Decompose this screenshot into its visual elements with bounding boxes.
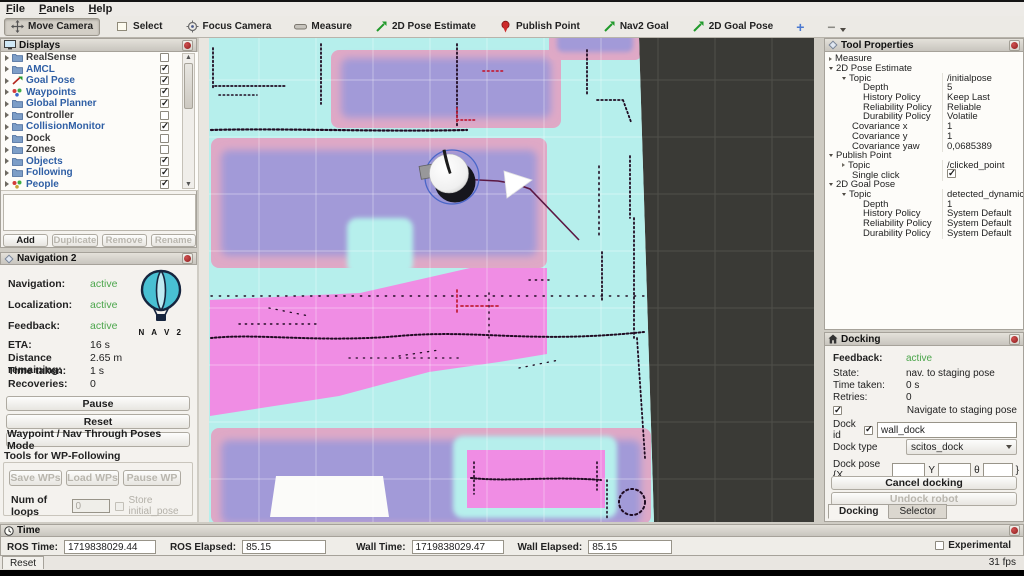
green-arrow-icon [375, 20, 388, 33]
tool-2d-goal-pose[interactable]: 2D Goal Pose [685, 18, 780, 36]
wall-elapsed-input[interactable] [588, 540, 672, 554]
tool-label: Select [133, 21, 162, 32]
num-loops-input[interactable] [72, 499, 110, 513]
display-description-box [3, 194, 196, 231]
dock-type-select[interactable]: scitos_dock [906, 439, 1017, 455]
display-item-dock[interactable]: Dock [1, 133, 198, 145]
wp-tools-heading: Tools for WP-Following [4, 450, 120, 462]
time-fields-row: ROS Time: ROS Elapsed: Wall Time: Wall E… [7, 540, 672, 554]
dock-pose-close-brace: } [1016, 465, 1019, 476]
clock-icon [4, 526, 14, 536]
dock-pose-theta-input[interactable] [983, 463, 1013, 477]
displays-panel: Displays RealSense AMCL Goal Pose Waypoi… [0, 38, 197, 248]
display-item-collisionmonitor[interactable]: CollisionMonitor [1, 121, 198, 133]
scrollbar-thumb[interactable] [184, 63, 193, 109]
display-item-amcl[interactable]: AMCL [1, 64, 198, 76]
display-checkbox[interactable] [160, 76, 169, 85]
folder-icon [12, 111, 23, 120]
docking-feedback-row: Feedback:active [833, 353, 932, 364]
property-row: Durability PolicySystem Default [825, 228, 1023, 238]
state-label: State: [833, 368, 906, 379]
dock-pose-x-input[interactable] [892, 463, 925, 477]
expand-arrow-icon[interactable] [5, 112, 9, 118]
docking-state-row: State:nav. to staging pose [833, 368, 995, 379]
ros-time-label: ROS Time: [7, 542, 58, 553]
folder-icon [12, 168, 23, 177]
load-wps-button[interactable]: Load WPs [66, 470, 119, 486]
display-item-label: RealSense [26, 52, 77, 63]
menu-panels[interactable]: Panels [39, 3, 74, 15]
bottom-letterbox [0, 570, 1024, 576]
ros-time-input[interactable] [64, 540, 156, 554]
folder-icon [12, 145, 23, 154]
display-item-following[interactable]: Following [1, 167, 198, 179]
tool-publish-point[interactable]: Publish Point [492, 18, 587, 36]
tool-label: Publish Point [516, 21, 580, 32]
display-checkbox[interactable] [160, 65, 169, 74]
folder-icon [12, 99, 23, 108]
property-value[interactable]: 0,0685389 [942, 141, 1023, 152]
expand-arrow-icon[interactable] [842, 163, 845, 167]
dock-id-row: Dock id [833, 419, 1017, 441]
display-item-label: Dock [26, 133, 50, 144]
expand-arrow-icon[interactable] [5, 124, 9, 130]
dock-type-row: Dock type scitos_dock [833, 439, 1017, 455]
expand-arrow-icon[interactable] [5, 66, 9, 72]
stat-value: 1 s [90, 365, 104, 377]
dock-id-label: Dock id [833, 419, 860, 441]
tool-nav2-goal[interactable]: Nav2 Goal [596, 18, 676, 36]
menu-help[interactable]: Help [88, 3, 112, 15]
docking-retries-row: Retries:0 [833, 392, 912, 403]
ros-elapsed-input[interactable] [242, 540, 326, 554]
display-checkbox[interactable] [160, 168, 169, 177]
dock-type-value: scitos_dock [911, 442, 963, 453]
navigation2-panel: Navigation 2 Navigation:active Localizat… [0, 252, 197, 522]
display-item-label: AMCL [26, 64, 55, 75]
status-label: Navigation: [8, 278, 90, 290]
display-checkbox[interactable] [160, 145, 169, 154]
navigate-staging-row: Navigate to staging pose [833, 405, 1017, 416]
folder-icon [12, 122, 23, 131]
pause-button[interactable]: Pause [6, 396, 190, 411]
close-panel-button[interactable] [1009, 40, 1020, 51]
diamond-icon [828, 40, 838, 50]
people-dots-icon [12, 180, 23, 189]
docking-time-row: Time taken:0 s [833, 380, 919, 391]
tool-measure[interactable]: Measure [287, 18, 359, 36]
status-label: Feedback: [8, 320, 90, 332]
store-initial-pose-label: Store initial_pose [129, 495, 192, 517]
display-item-label: Controller [26, 110, 74, 121]
status-value: active [90, 299, 117, 311]
duplicate-display-button[interactable]: Duplicate [52, 234, 97, 247]
free-space [270, 476, 389, 517]
close-icon [1011, 336, 1018, 343]
remove-display-button[interactable]: Remove [102, 234, 147, 247]
docking-panel: Docking Feedback:active State:nav. to st… [824, 332, 1024, 522]
stat-label: Time taken: [8, 365, 90, 377]
folder-icon [12, 134, 23, 143]
nav-stat-row: Recoveries:0 [8, 378, 96, 390]
display-checkbox[interactable] [160, 180, 169, 189]
rename-display-button[interactable]: Rename [151, 234, 196, 247]
waypoint-mode-button[interactable]: Waypoint / Nav Through Poses Mode [6, 432, 190, 447]
tool-2d-pose-estimate[interactable]: 2D Pose Estimate [368, 18, 483, 36]
stat-value: 16 s [90, 339, 110, 351]
display-checkbox[interactable] [160, 157, 169, 166]
docking-tabs: Docking Selector [828, 504, 947, 519]
dropdown-caret-icon [840, 28, 846, 32]
toolbar: Move Camera Select Focus Camera Measure … [0, 16, 1024, 38]
plus-icon: + [796, 19, 804, 35]
panel-title: Time [17, 525, 40, 536]
feedback-label: Feedback: [833, 353, 906, 364]
map-canvas [199, 38, 814, 522]
close-panel-button[interactable] [182, 253, 193, 264]
collapse-arrow-icon[interactable] [842, 77, 846, 80]
dock-type-label: Dock type [833, 442, 902, 453]
property-value[interactable]: System Default [942, 228, 1023, 239]
display-checkbox[interactable] [160, 88, 169, 97]
unknown-space [639, 38, 814, 522]
expand-arrow-icon[interactable] [5, 55, 9, 61]
close-panel-button[interactable] [1009, 525, 1020, 536]
waypoints-dots-icon [12, 88, 23, 97]
navigate-staging-checkbox[interactable] [833, 406, 842, 415]
time-panel-titlebar[interactable]: Time [1, 525, 1023, 537]
nav-status-row: Localization:active [8, 299, 117, 311]
add-tool-button[interactable]: + [789, 18, 811, 36]
add-display-button[interactable]: Add [3, 234, 48, 247]
collapse-arrow-icon[interactable] [829, 67, 833, 70]
close-panel-button[interactable] [182, 40, 193, 51]
tab-docking[interactable]: Docking [828, 504, 889, 519]
pause-wp-button[interactable]: Pause WP [123, 470, 181, 486]
nav-status-row: Navigation:active [8, 278, 117, 290]
status-bar: Reset 31 fps [0, 556, 1024, 570]
display-item-zones[interactable]: Zones [1, 144, 198, 156]
navigate-staging-label: Navigate to staging pose [907, 405, 1017, 416]
nav-stat-row: Time taken:1 s [8, 365, 104, 377]
experimental-checkbox[interactable] [935, 541, 944, 550]
scroll-up-icon[interactable]: ▲ [185, 54, 192, 61]
dock-pose-y-input[interactable] [938, 463, 971, 477]
panel-title: Navigation 2 [17, 253, 76, 264]
close-panel-button[interactable] [1009, 334, 1020, 345]
expand-arrow-icon[interactable] [5, 78, 9, 84]
display-checkbox[interactable] [160, 111, 169, 120]
display-checkbox[interactable] [160, 53, 169, 62]
wall-time-label: Wall Time: [356, 542, 405, 553]
stat-value: 0 [90, 378, 96, 390]
expand-arrow-icon[interactable] [5, 170, 9, 176]
measure-icon [294, 20, 307, 33]
display-item-realsense[interactable]: RealSense [1, 52, 198, 64]
panel-title: Docking [841, 334, 880, 345]
display-item-label: Zones [26, 144, 55, 155]
nav2-logo: N A V 2 [133, 268, 189, 337]
focus-camera-icon [186, 20, 199, 33]
costmap [199, 38, 659, 522]
nav-stat-row: ETA:16 s [8, 339, 110, 351]
display-item-goal-pose[interactable]: Goal Pose [1, 75, 198, 87]
time-taken-label: Time taken: [833, 380, 906, 391]
menu-bar: File Panels Help [0, 0, 1024, 16]
map-pin-icon [499, 20, 512, 33]
folder-icon [12, 157, 23, 166]
close-icon [184, 255, 191, 262]
displays-scrollbar[interactable]: ▲ ▼ [182, 53, 195, 189]
displays-tree: RealSense AMCL Goal Pose Waypoints Globa… [1, 52, 198, 191]
wp-tools-group: Save WPs Load WPs Pause WP Num of loops … [3, 462, 193, 516]
home-icon [828, 334, 838, 344]
display-item-people[interactable]: People [1, 179, 198, 191]
display-item-label: Goal Pose [26, 75, 75, 86]
expand-arrow-icon[interactable] [5, 158, 9, 164]
minus-icon: − [827, 19, 835, 35]
stat-label: ETA: [8, 339, 90, 351]
display-item-label: Global Planner [26, 98, 97, 109]
experimental-row: Experimental [935, 540, 1011, 551]
stat-label: Recoveries: [8, 378, 90, 390]
tool-label: Focus Camera [203, 21, 272, 32]
scroll-down-icon[interactable]: ▼ [185, 181, 192, 188]
status-label: Localization: [8, 299, 90, 311]
tool-properties-tree: Measure 2D Pose Estimate Topic/initialpo… [825, 54, 1023, 238]
wall-time-input[interactable] [412, 540, 504, 554]
folder-icon [12, 53, 23, 62]
panel-title: Tool Properties [841, 40, 914, 51]
property-label: Durability Policy [863, 228, 931, 239]
diamond-icon [4, 254, 14, 264]
close-icon [1011, 42, 1018, 49]
dock-id-checkbox[interactable] [864, 426, 873, 435]
expand-arrow-icon[interactable] [5, 147, 9, 153]
feedback-value: active [906, 353, 932, 364]
goal-arrow-icon [12, 76, 23, 85]
chevron-down-icon [1006, 445, 1012, 449]
dock-pose-theta-label: θ [974, 465, 980, 476]
store-initial-pose-checkbox[interactable] [115, 502, 124, 511]
tool-properties-panel: Tool Properties Measure 2D Pose Estimate… [824, 38, 1024, 330]
docking-panel-titlebar[interactable]: Docking [825, 333, 1023, 346]
ros-elapsed-label: ROS Elapsed: [170, 542, 236, 553]
nav2-logo-text: N A V 2 [133, 328, 189, 337]
display-item-label: People [26, 179, 59, 190]
status-value: active [90, 278, 117, 290]
tool-label: 2D Goal Pose [709, 21, 773, 32]
cancel-docking-button[interactable]: Cancel docking [831, 476, 1017, 490]
nav-status-row: Feedback:active [8, 320, 117, 332]
green-arrow-icon [692, 20, 705, 33]
collapse-arrow-icon[interactable] [842, 193, 846, 196]
3d-render-view[interactable] [199, 38, 814, 522]
retries-label: Retries: [833, 392, 906, 403]
display-item-label: Objects [26, 156, 63, 167]
single-click-checkbox[interactable] [947, 169, 956, 178]
close-icon [184, 42, 191, 49]
monitor-icon [4, 40, 16, 50]
select-icon [116, 20, 129, 33]
tool-label: Measure [311, 21, 352, 32]
tool-label: Move Camera [28, 21, 93, 32]
dock-pose-y-label: Y [928, 465, 935, 476]
time-panel: Time ROS Time: ROS Elapsed: Wall Time: W… [0, 524, 1024, 556]
status-value: active [90, 320, 117, 332]
displays-panel-titlebar[interactable]: Displays [1, 39, 196, 52]
expand-arrow-icon[interactable] [829, 57, 832, 61]
display-item-global-planner[interactable]: Global Planner [1, 98, 198, 110]
expand-arrow-icon[interactable] [5, 89, 9, 95]
tool-move-camera[interactable]: Move Camera [4, 18, 100, 36]
balloon-icon [135, 268, 187, 324]
expand-arrow-icon[interactable] [5, 135, 9, 141]
display-checkbox[interactable] [160, 99, 169, 108]
close-icon [1011, 527, 1018, 534]
retries-value: 0 [906, 392, 912, 403]
tool-properties-titlebar[interactable]: Tool Properties [825, 39, 1023, 52]
reset-time-button[interactable]: Reset [2, 556, 44, 569]
move-camera-icon [11, 20, 24, 33]
display-item-controller[interactable]: Controller [1, 110, 198, 122]
fps-counter: 31 fps [989, 557, 1016, 568]
property-value [942, 169, 1023, 181]
state-value: nav. to staging pose [906, 368, 995, 379]
tool-select[interactable]: Select [109, 18, 169, 36]
expand-arrow-icon[interactable] [5, 101, 9, 107]
num-loops-row: Num of loops Store initial_pose [11, 494, 192, 518]
display-item-objects[interactable]: Objects [1, 156, 198, 168]
displays-buttons: Add Duplicate Remove Rename [3, 234, 196, 247]
dock-id-input[interactable] [877, 422, 1017, 438]
experimental-label: Experimental [948, 540, 1011, 551]
collapse-arrow-icon[interactable] [829, 183, 833, 186]
tool-focus-camera[interactable]: Focus Camera [179, 18, 279, 36]
nav2-panel-titlebar[interactable]: Navigation 2 [0, 252, 197, 265]
display-item-label: Waypoints [26, 87, 76, 98]
collapse-arrow-icon[interactable] [829, 154, 833, 157]
display-checkbox[interactable] [160, 122, 169, 131]
tab-selector[interactable]: Selector [889, 504, 947, 519]
tool-label: Nav2 Goal [620, 21, 669, 32]
folder-icon [12, 65, 23, 74]
green-arrow-icon [603, 20, 616, 33]
menu-file[interactable]: File [6, 3, 25, 15]
panel-title: Displays [19, 40, 60, 51]
tool-label: 2D Pose Estimate [392, 21, 476, 32]
time-taken-value: 0 s [906, 380, 919, 391]
save-wps-button[interactable]: Save WPs [9, 470, 62, 486]
display-item-label: CollisionMonitor [26, 121, 105, 132]
num-loops-label: Num of loops [11, 494, 67, 518]
display-checkbox[interactable] [160, 134, 169, 143]
display-item-label: Following [26, 167, 73, 178]
expand-arrow-icon[interactable] [5, 181, 9, 187]
wall-elapsed-label: Wall Elapsed: [518, 542, 583, 553]
display-item-waypoints[interactable]: Waypoints [1, 87, 198, 99]
remove-tool-button[interactable]: − [820, 18, 852, 36]
